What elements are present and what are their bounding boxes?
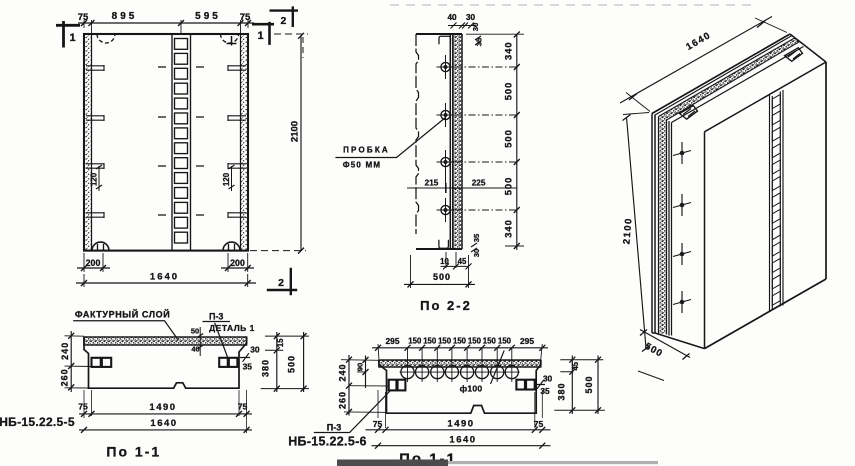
svg-text:150: 150 (453, 337, 467, 346)
svg-text:45: 45 (571, 361, 580, 370)
svg-text:200: 200 (86, 258, 101, 268)
svg-text:150: 150 (423, 337, 437, 346)
svg-text:120: 120 (90, 172, 99, 186)
svg-text:1640: 1640 (150, 272, 179, 283)
svg-text:120: 120 (222, 172, 231, 186)
svg-text:260: 260 (60, 368, 70, 386)
svg-text:2100: 2100 (290, 121, 301, 142)
svg-text:895: 895 (112, 11, 138, 22)
svg-text:380: 380 (556, 382, 566, 400)
svg-text:75: 75 (78, 402, 88, 412)
svg-text:500: 500 (504, 129, 514, 148)
svg-text:45: 45 (458, 257, 467, 266)
svg-text:75: 75 (238, 402, 248, 412)
svg-text:По 1-1: По 1-1 (106, 444, 161, 460)
svg-text:340: 340 (504, 219, 514, 238)
svg-text:ПРОБКА: ПРОБКА (343, 146, 390, 155)
svg-text:260: 260 (338, 391, 348, 409)
svg-text:75: 75 (534, 419, 544, 429)
svg-text:1: 1 (69, 32, 75, 44)
svg-text:75: 75 (373, 419, 383, 429)
svg-text:380: 380 (261, 359, 271, 377)
svg-text:1490: 1490 (149, 402, 176, 413)
svg-text:2: 2 (280, 15, 286, 27)
svg-text:150: 150 (438, 337, 452, 346)
svg-text:240: 240 (338, 363, 348, 381)
svg-text:НБ-15.22.5-5: НБ-15.22.5-5 (0, 415, 75, 429)
svg-text:150: 150 (468, 337, 482, 346)
svg-text:1: 1 (257, 30, 263, 42)
svg-text:По 2-2: По 2-2 (420, 298, 472, 313)
svg-text:500: 500 (287, 355, 297, 373)
svg-text:30: 30 (471, 23, 480, 31)
svg-text:500: 500 (584, 375, 594, 393)
svg-text:40: 40 (447, 13, 457, 22)
svg-text:Ф50 ММ: Ф50 ММ (343, 161, 381, 170)
svg-text:90: 90 (355, 363, 364, 371)
svg-text:30: 30 (250, 345, 260, 355)
svg-text:225: 225 (472, 179, 486, 188)
svg-text:75: 75 (240, 12, 251, 23)
svg-text:50: 50 (191, 327, 199, 336)
svg-text:215: 215 (425, 179, 439, 188)
svg-text:200: 200 (230, 258, 245, 268)
svg-text:ф100: ф100 (460, 384, 483, 394)
svg-text:П-3: П-3 (209, 312, 223, 322)
svg-text:595: 595 (195, 11, 221, 22)
svg-text:П-3: П-3 (327, 423, 341, 433)
svg-text:240: 240 (60, 342, 70, 360)
svg-text:35: 35 (540, 386, 550, 396)
svg-text:295: 295 (386, 336, 400, 346)
svg-text:2100: 2100 (621, 217, 634, 245)
svg-text:НБ-15.22.5-6: НБ-15.22.5-6 (288, 435, 367, 449)
svg-text:500: 500 (504, 82, 514, 101)
svg-text:30: 30 (466, 13, 476, 22)
svg-text:500: 500 (504, 177, 514, 196)
svg-text:150: 150 (498, 337, 512, 346)
svg-text:40: 40 (191, 345, 199, 354)
svg-text:35: 35 (243, 362, 253, 372)
svg-text:10: 10 (440, 257, 449, 266)
svg-text:1640: 1640 (150, 418, 177, 429)
svg-text:150: 150 (483, 337, 497, 346)
svg-text:1640: 1640 (449, 435, 476, 446)
svg-text:500: 500 (433, 272, 451, 282)
svg-text:35: 35 (472, 233, 481, 242)
svg-text:295: 295 (520, 336, 534, 346)
svg-text:2: 2 (278, 277, 284, 289)
svg-text:30: 30 (543, 374, 553, 384)
svg-text:ФАКТУРНЫЙ СЛОЙ: ФАКТУРНЫЙ СЛОЙ (75, 309, 171, 320)
svg-text:75: 75 (78, 12, 89, 23)
svg-text:150: 150 (408, 337, 422, 346)
svg-text:1490: 1490 (447, 419, 474, 430)
svg-text:340: 340 (504, 41, 514, 60)
svg-text:15: 15 (276, 338, 285, 347)
